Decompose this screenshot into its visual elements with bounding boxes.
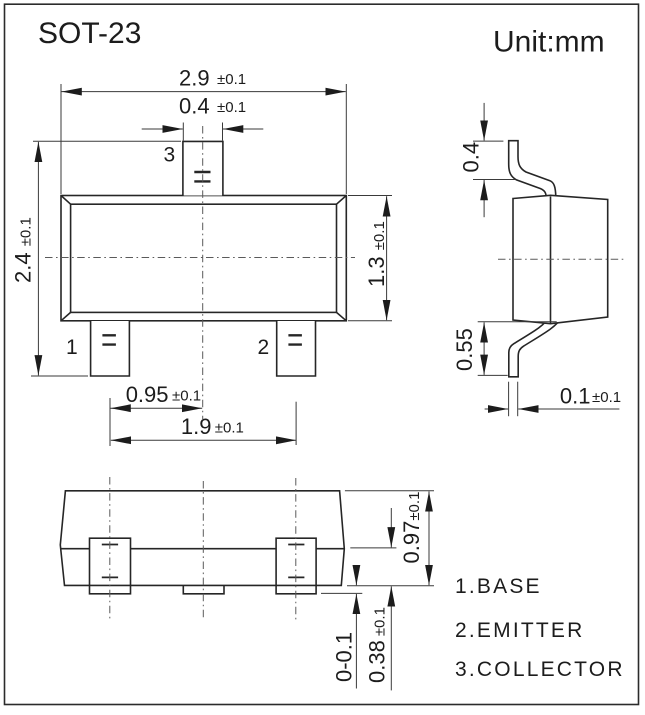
svg-text:±0.1: ±0.1 <box>217 99 246 116</box>
svg-text:0.4: 0.4 <box>459 142 484 173</box>
svg-text:3: 3 <box>164 144 176 167</box>
svg-text:0.95: 0.95 <box>126 382 169 407</box>
svg-text:1.BASE: 1.BASE <box>455 575 542 598</box>
svg-text:3.COLLECTOR: 3.COLLECTOR <box>455 658 625 681</box>
svg-text:Unit:mm: Unit:mm <box>493 26 605 59</box>
svg-text:±0.1: ±0.1 <box>217 71 246 88</box>
svg-text:2.EMITTER: 2.EMITTER <box>455 619 584 642</box>
svg-text:±0.1: ±0.1 <box>215 420 244 437</box>
svg-text:0.55: 0.55 <box>452 328 477 371</box>
svg-text:1: 1 <box>66 336 78 359</box>
svg-text:1.9: 1.9 <box>181 414 212 439</box>
svg-text:±0.1: ±0.1 <box>592 389 621 406</box>
svg-text:SOT-23: SOT-23 <box>38 17 141 50</box>
svg-text:2.9: 2.9 <box>179 66 210 91</box>
svg-text:2: 2 <box>258 336 270 359</box>
svg-text:±0.1: ±0.1 <box>172 388 201 405</box>
svg-text:0.1: 0.1 <box>560 384 591 409</box>
svg-text:0.4: 0.4 <box>179 94 210 119</box>
svg-text:0-0.1: 0-0.1 <box>332 632 357 682</box>
